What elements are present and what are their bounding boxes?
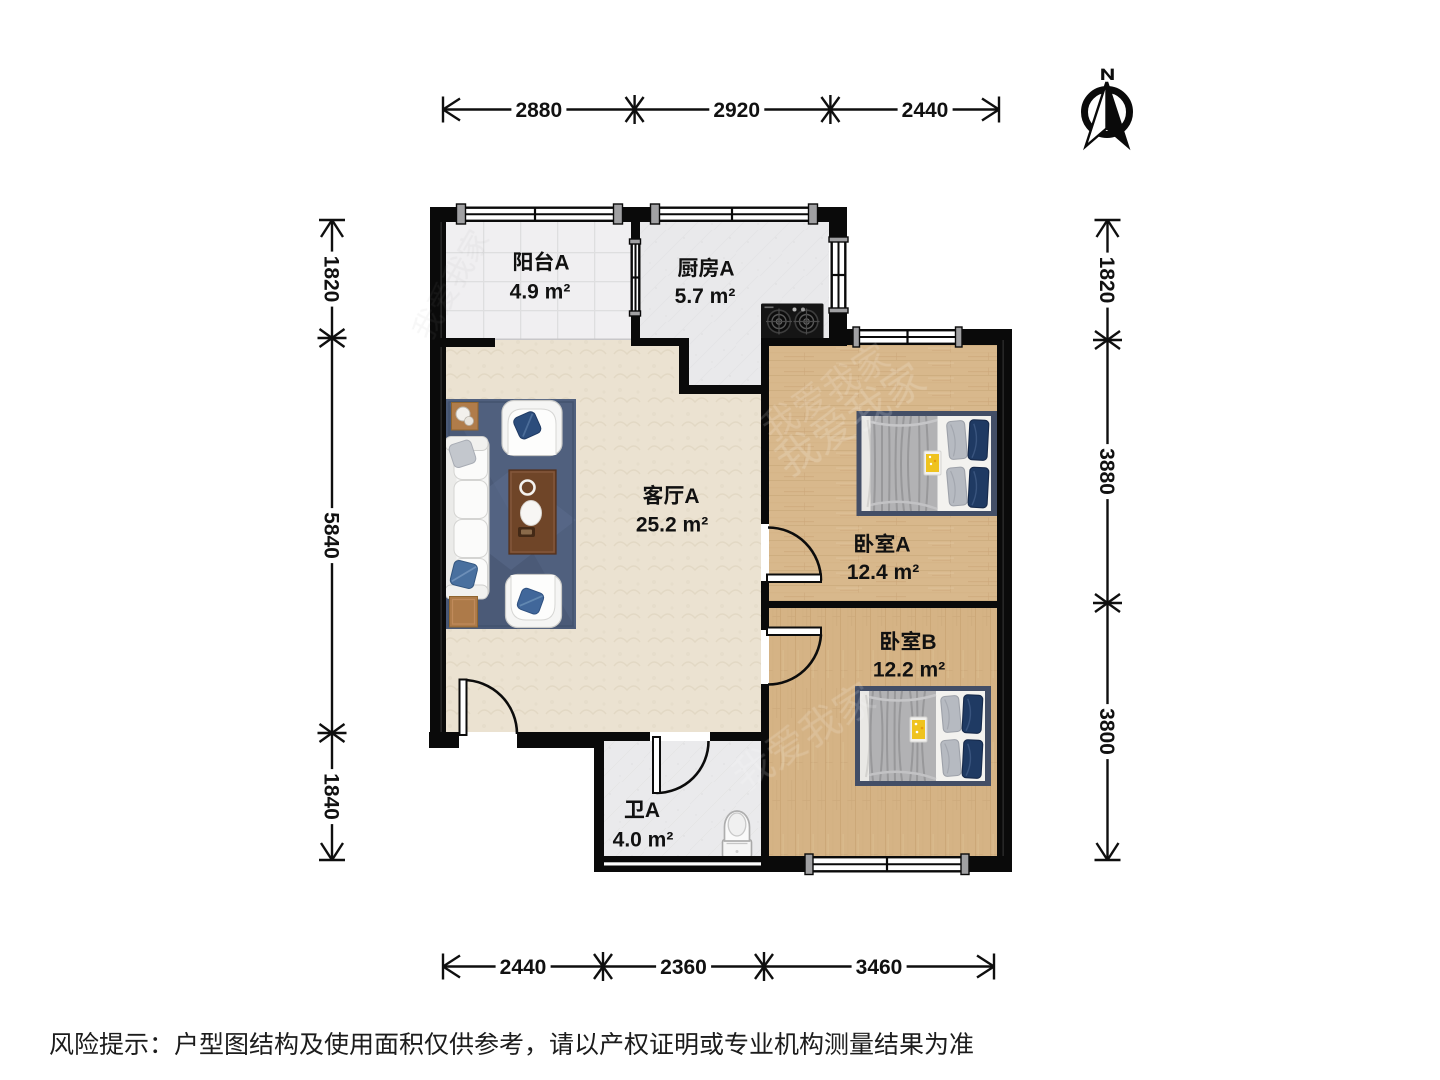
svg-text:2360: 2360 <box>660 956 707 979</box>
svg-text:A: A <box>645 799 660 822</box>
svg-text:A: A <box>554 251 569 274</box>
svg-text:12.2 m²: 12.2 m² <box>873 659 945 682</box>
svg-text:4.9 m²: 4.9 m² <box>510 281 571 304</box>
svg-text:2880: 2880 <box>515 99 562 122</box>
svg-text:3800: 3800 <box>1095 708 1118 755</box>
svg-text:1840: 1840 <box>320 773 343 820</box>
svg-text:4.0 m²: 4.0 m² <box>613 829 674 852</box>
svg-text:B: B <box>921 631 936 654</box>
svg-text:A: A <box>719 257 734 280</box>
svg-text:5.7 m²: 5.7 m² <box>675 285 736 308</box>
svg-text:2920: 2920 <box>713 99 760 122</box>
svg-text:12.4 m²: 12.4 m² <box>847 561 919 584</box>
svg-text:1820: 1820 <box>1095 257 1118 304</box>
svg-text:25.2 m²: 25.2 m² <box>636 514 708 537</box>
svg-text:3460: 3460 <box>856 956 903 979</box>
svg-text:2440: 2440 <box>500 956 547 979</box>
svg-text:2440: 2440 <box>902 99 949 122</box>
svg-text:A: A <box>684 485 699 508</box>
svg-text:1820: 1820 <box>320 256 343 303</box>
svg-text:A: A <box>895 533 910 556</box>
svg-text:3880: 3880 <box>1095 448 1118 495</box>
svg-text:5840: 5840 <box>320 512 343 559</box>
